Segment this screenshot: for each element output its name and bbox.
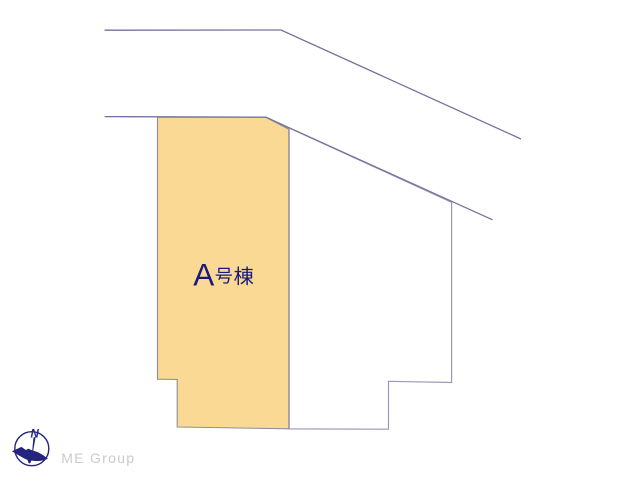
svg-text:A: A <box>193 257 214 293</box>
svg-text:ME Group: ME Group <box>61 450 135 466</box>
